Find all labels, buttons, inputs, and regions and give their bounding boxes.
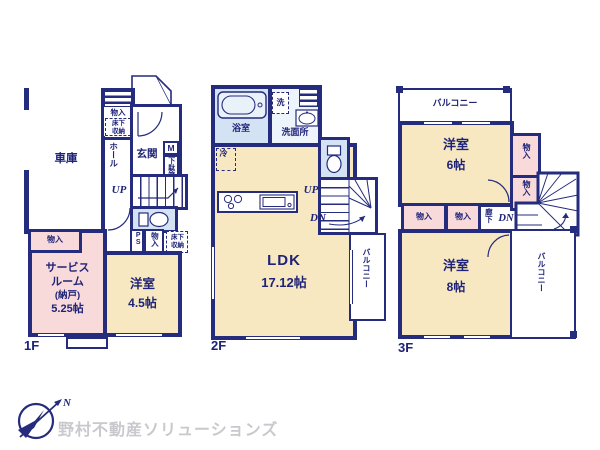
window-bedroom6-top [424,121,452,125]
kitchen-sink-icon [259,194,295,210]
service-room-name-1: サービス [28,262,107,276]
closet-mid-label: 物入 [150,232,159,247]
fridge-label: 冷 [217,149,230,159]
closet-3f-bottom-2-label: 物入 [445,212,481,222]
bedroom-8-size: 8帖 [398,280,514,295]
underfloor-mid-label: 床下収納 [170,234,185,250]
hall-label: ホール [108,142,119,168]
floor3-label: 3F [398,340,424,356]
balcony-post-tr [503,86,510,93]
bedroom-6-door-arc-icon [486,178,511,204]
bedroom-8-door-arc-icon [486,233,511,259]
balcony-post-br-top [570,226,577,233]
balcony-post-br-bottom [570,331,577,338]
window-bedroom8-bottom [424,335,450,339]
washer-label: 洗 [272,98,289,108]
hall-door-arc-icon [106,206,132,232]
stove-icon [221,194,249,210]
pipe-space-label: PS [133,232,142,246]
service-closet-label: 物入 [28,235,82,245]
bedroom-45-room [103,251,182,337]
window-ldk-bottom [246,336,300,340]
balcony-2f-label: バルコニー [361,248,371,288]
hall-left-wall [101,136,105,235]
washbasin-icon [295,109,319,127]
company-name: 野村不動産ソリューションズ [58,416,278,440]
window-balcony-2f [349,250,353,304]
closet-3f-right-1-label: 物入 [521,143,531,159]
entrance-label: 玄関 [132,148,162,161]
bedroom-6-name: 洋室 [398,137,514,153]
ldk-name: LDK [211,252,357,271]
underfloor-top-label: 床下収納 [111,120,126,136]
hallway-label: 廊下 [484,208,493,223]
washroom-label: 洗面所 [270,127,320,138]
bathroom-label: 浴室 [218,123,264,134]
north-label: N [62,397,72,409]
shelf-icon [104,91,132,107]
service-room-size: 5.25帖 [28,303,107,317]
closet-top-label: 物入 [103,108,133,117]
stairs-1f-up-label: UP [108,184,130,198]
window-bedroom45-bottom [116,333,162,337]
toilet-2f-icon [325,145,343,174]
bedroom-45-size: 4.5帖 [103,296,182,311]
ldk-size: 17.12帖 [211,275,357,291]
porch-step-1f [66,337,108,349]
underfloor-storage-top: 床下収納 [105,118,131,136]
garage-wall-upper [24,88,29,110]
stairs-1f-arrow-icon [134,180,184,204]
window-bedroom6-top2 [462,121,490,125]
balcony-3f-top-label: バルコニー [398,98,512,109]
service-room-name-2: ルーム [28,276,107,290]
floor1-label: 1F [24,338,48,354]
bedroom-8-name: 洋室 [398,258,514,274]
garage-wall-lower [24,170,29,234]
floor2-label: 2F [211,338,237,354]
balcony-post-tl [396,86,403,93]
shoebox-m-label: M [163,143,179,154]
stairs-2f-dn-label: DN [306,212,330,226]
closet-3f-bottom-1-label: 物入 [401,212,447,222]
floor-plan-canvas: 車庫 物入 床下収納 玄関 M 下駄箱 ホール UP PS 物入 [0,0,600,450]
window-bedroom8-bottom2 [464,335,490,339]
bathtub-icon [217,91,267,119]
window-service-bottom [38,333,64,337]
underfloor-storage-mid: 床下収納 [166,231,188,253]
balcony-3f-side-label: バルコニー [536,252,546,292]
window-ldk-left [211,247,215,299]
service-room-name-3: (納戸) [28,290,107,302]
bedroom-6-size: 6帖 [398,158,514,173]
bedroom-45-name: 洋室 [103,277,182,293]
linen-shelf-icon [299,89,318,107]
toilet-1f-icon [138,211,170,228]
entrance-door-arc-icon [136,110,164,138]
stairs-2f-up-label: UP [299,184,323,198]
garage-label: 車庫 [48,152,84,166]
